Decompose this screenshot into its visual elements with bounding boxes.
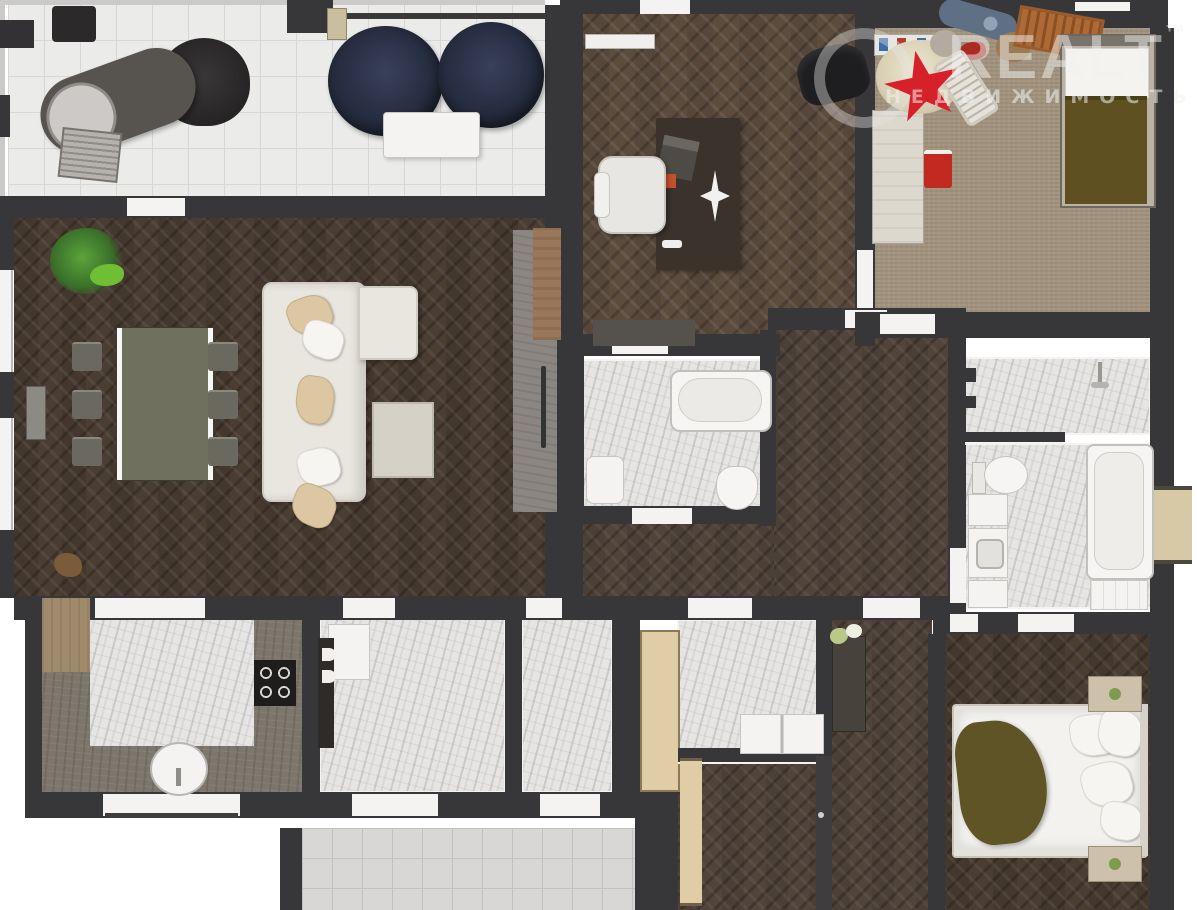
faucet: [176, 768, 181, 786]
corridor-door-beige: [680, 758, 702, 906]
sideboard: [26, 386, 46, 440]
dining-chair: [208, 437, 238, 466]
vanity-sink: [322, 670, 336, 683]
wall-left-seg3: [0, 530, 14, 598]
nightstand-plant: [1109, 688, 1121, 700]
terrace-left-pillar: [0, 95, 10, 137]
door-hallway-bottom: [863, 598, 920, 618]
washing-machine: [968, 528, 1008, 578]
washer-drum: [976, 539, 1004, 569]
wall-terrace-bottom-left: [280, 828, 302, 910]
door-bathroom-a: [343, 598, 395, 618]
wall-office-top: [560, 0, 860, 14]
nightstand: [1088, 676, 1142, 712]
door-bathroom-right: [950, 548, 966, 603]
kids-wardrobe: [872, 110, 924, 244]
dining-chair: [72, 390, 102, 419]
hallway-center-floor: [774, 326, 950, 598]
kids-bed-frame: [1060, 34, 1156, 208]
bench: [52, 6, 96, 42]
terrace-cabinet: [327, 8, 347, 40]
tv-cabinet-wood: [533, 228, 561, 340]
bathtub-horizontal: [670, 370, 772, 432]
wall-terrace-living: [0, 196, 560, 218]
door-handle: [818, 812, 824, 818]
door-bathroom-middle-bottom: [632, 508, 692, 524]
kids-bed-headboard: [1062, 36, 1150, 46]
wc-counter: [740, 714, 824, 754]
kids-chair-red: [924, 150, 952, 188]
cooktop: [254, 660, 296, 706]
wall-bedroom-left: [928, 634, 945, 910]
wall-kitchen-left: [25, 596, 42, 818]
hallway-center-extension-floor: [583, 524, 774, 598]
nightstand: [1088, 846, 1142, 882]
dining-chair: [208, 390, 238, 419]
bath-shelf: [1090, 580, 1148, 610]
terrace-coffee-table: [383, 112, 480, 158]
toilet-2: [984, 456, 1028, 494]
palm-plant: [50, 228, 122, 294]
wall-bathroom-middle-left: [570, 356, 584, 508]
vanity-sink: [322, 648, 336, 661]
bed-double: [952, 704, 1148, 858]
radiator-exterior: [1152, 486, 1192, 564]
flower-bloom: [846, 624, 862, 638]
shower-head: [1098, 362, 1102, 384]
dining-table: [117, 328, 213, 480]
step-bench: [58, 127, 123, 183]
wall-corridor-left-low: [635, 792, 678, 910]
bath-cabinet-1: [968, 494, 1008, 526]
bed-headboard: [1140, 704, 1148, 856]
terrace-rail: [337, 13, 545, 19]
bathtub-basin: [678, 378, 762, 422]
window-kids-top: [1075, 2, 1130, 11]
door-bedroom: [1018, 614, 1074, 632]
door-terrace-living: [127, 198, 185, 216]
wall-a-b: [505, 618, 522, 794]
wall-bathroom-right-divider: [965, 432, 1065, 445]
bath-cabinet-2: [968, 580, 1008, 608]
dining-chair: [72, 342, 102, 371]
dining-chair: [208, 342, 238, 371]
console-table: [832, 636, 866, 732]
door-kitchen: [95, 598, 205, 618]
toilet: [716, 466, 758, 510]
office-shelf: [585, 34, 655, 49]
door-kids-bottom: [880, 314, 935, 334]
door-room-b-terrace: [540, 794, 600, 816]
wardrobe-beige: [640, 630, 680, 792]
kitchen-floor: [90, 606, 254, 746]
room-b-floor: [522, 618, 612, 792]
bathtub-basin-2: [1094, 452, 1144, 570]
dining-chair: [72, 437, 102, 466]
bathtub-vertical: [1086, 444, 1154, 580]
door-bathroom-a-terrace: [352, 794, 438, 816]
door-leaf-kitchen: [105, 813, 238, 818]
sink: [586, 456, 624, 504]
kitchen-cabinet-wood: [42, 598, 90, 672]
vanity-dark: [318, 638, 334, 748]
kids-bed-blanket: [1065, 96, 1147, 204]
wall-niche-step2: [948, 396, 976, 408]
kitchen-sink: [150, 742, 208, 796]
door-wc: [688, 598, 752, 618]
book: [879, 38, 888, 51]
phone: [666, 174, 676, 188]
door-kids-left: [857, 250, 873, 308]
wall-niche-step1: [948, 368, 976, 382]
wall-b-c: [612, 618, 640, 794]
door-corridor-closed: [816, 756, 832, 910]
bathroom-right-upper-floor: [963, 358, 1150, 434]
rocket-window: [982, 15, 999, 32]
terrace-top-edge: [0, 0, 545, 5]
nightstand-plant: [1109, 858, 1121, 870]
shower-head-top: [1091, 382, 1109, 388]
decor-item: [54, 553, 82, 577]
terrace-bottom-floor: [302, 828, 635, 910]
window-living-1: [0, 270, 13, 372]
door-office-top: [640, 0, 690, 14]
wall-shelf: [0, 20, 34, 48]
sofa-chaise: [358, 286, 418, 360]
office-rug: [593, 320, 695, 346]
wall-left-seg2: [0, 372, 14, 418]
desk-item: [662, 240, 682, 248]
kids-bed-pillow: [1065, 48, 1149, 98]
window-living-2: [0, 418, 13, 530]
wall-left-seg1: [0, 218, 14, 270]
coffee-table: [372, 402, 434, 478]
door-bedroom-frame: [950, 614, 978, 632]
office-chair: [598, 156, 666, 234]
office-chair-back: [594, 172, 610, 218]
tv-screen: [541, 366, 546, 448]
floor-plan: REALT™ НЕДВИЖИМОСТЬ: [0, 0, 1197, 910]
door-room-b: [526, 598, 562, 618]
